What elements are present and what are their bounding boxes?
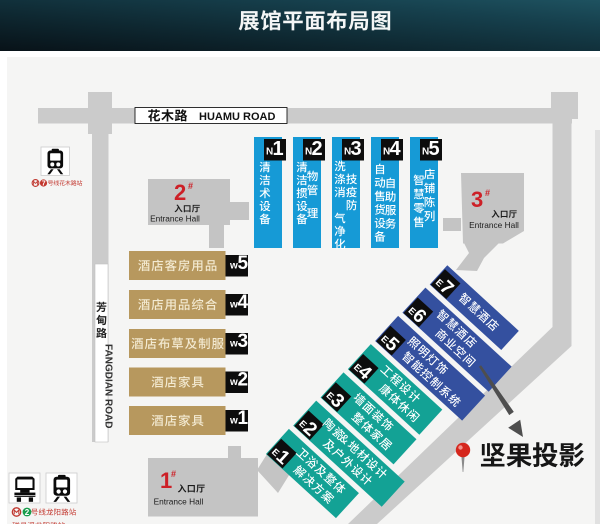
svg-text:5: 5 — [429, 138, 440, 160]
svg-text:FANGDIAN ROAD: FANGDIAN ROAD — [102, 344, 113, 428]
svg-text:3: 3 — [471, 187, 483, 212]
svg-text:2: 2 — [238, 370, 249, 391]
svg-text:Entrance Hall: Entrance Hall — [150, 214, 200, 224]
svg-text:2: 2 — [25, 508, 30, 517]
svg-text:2: 2 — [174, 180, 186, 205]
svg-text:3: 3 — [351, 138, 362, 160]
svg-text:HUAMU ROAD: HUAMU ROAD — [199, 111, 275, 123]
svg-text:5: 5 — [238, 253, 249, 274]
svg-text:4: 4 — [390, 138, 402, 160]
svg-text:4: 4 — [238, 292, 249, 313]
svg-text:3: 3 — [238, 331, 249, 352]
svg-text:Entrance Hall: Entrance Hall — [469, 220, 519, 230]
svg-text:#: # — [171, 469, 176, 479]
svg-text:2: 2 — [312, 138, 323, 160]
svg-text:#: # — [188, 181, 193, 191]
svg-text:Entrance Hall: Entrance Hall — [154, 497, 204, 507]
svg-text:1: 1 — [273, 138, 284, 160]
svg-text:#: # — [485, 188, 490, 198]
svg-text:7: 7 — [42, 181, 46, 188]
svg-text:1: 1 — [238, 408, 249, 429]
